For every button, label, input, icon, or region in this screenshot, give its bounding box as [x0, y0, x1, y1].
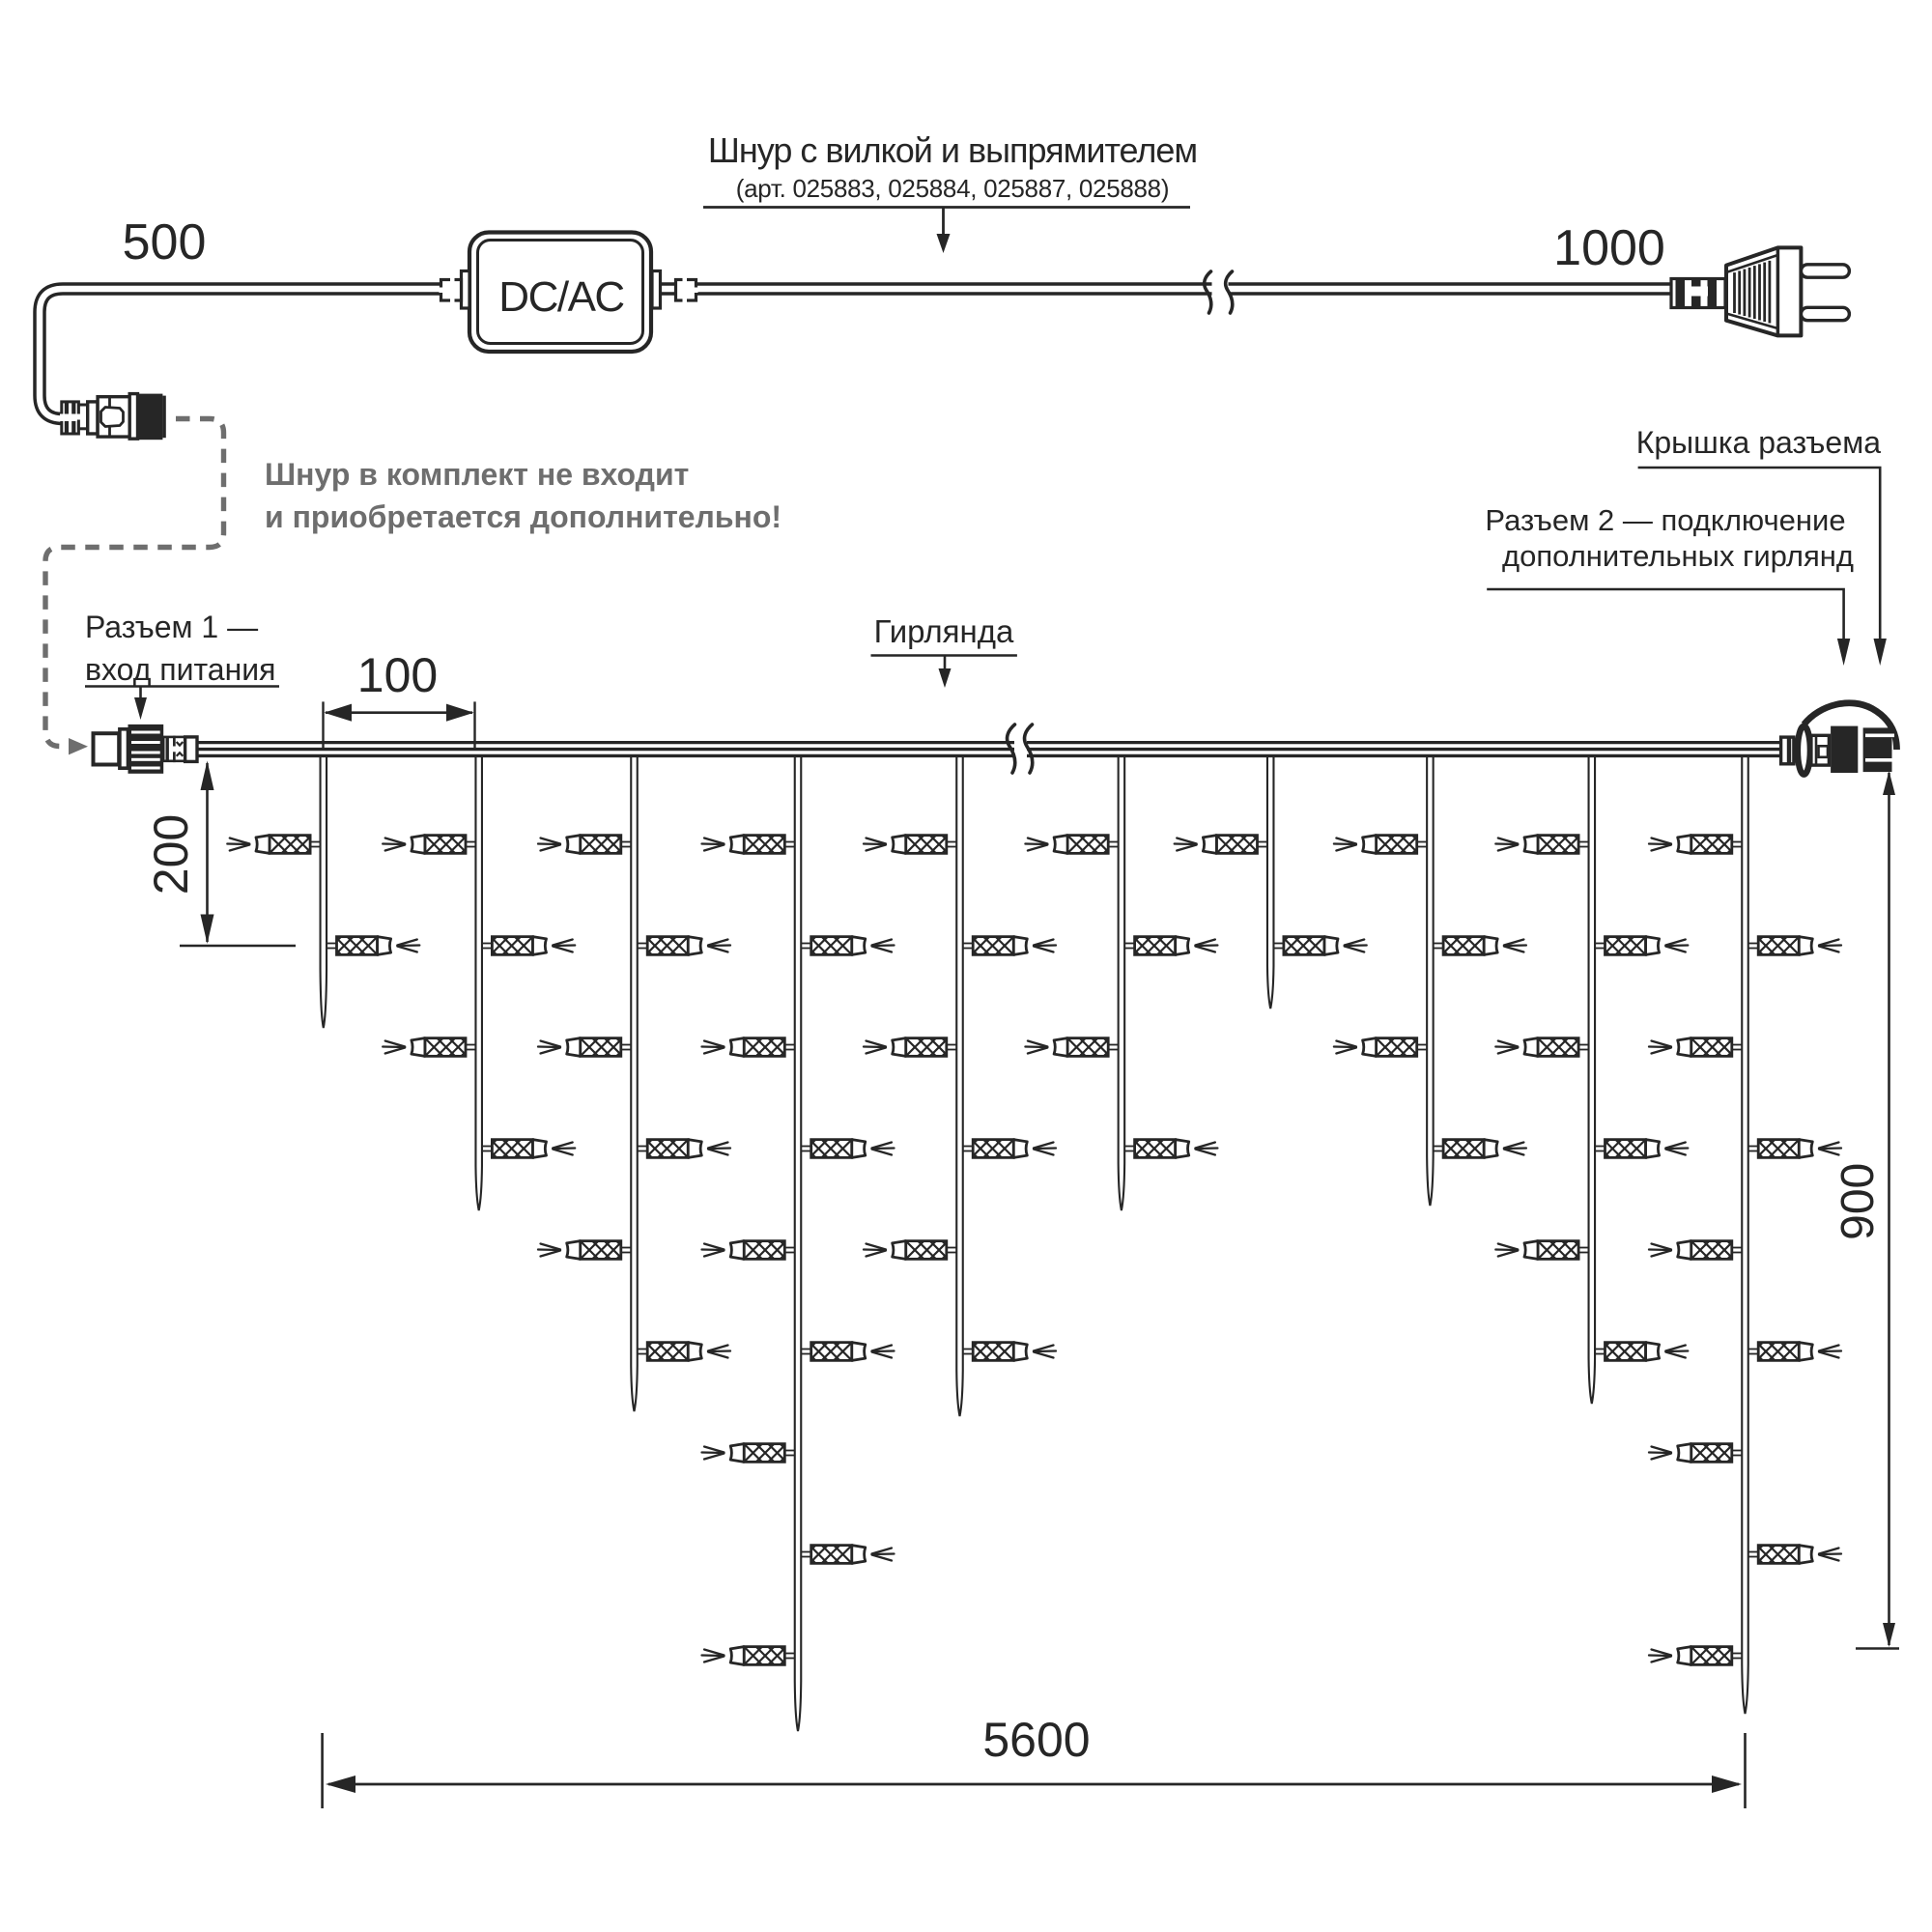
svg-text:(арт. 025883, 025884, 025887,: (арт. 025883, 025884, 025887, 025888) [736, 174, 1169, 203]
svg-text:вход питания: вход питания [85, 652, 275, 687]
svg-text:и приобретается дополнительно!: и приобретается дополнительно! [265, 499, 781, 534]
svg-text:Шнур с вилкой и выпрямителем: Шнур с вилкой и выпрямителем [708, 130, 1197, 170]
svg-text:DC/AC: DC/AC [498, 273, 624, 321]
svg-text:Гирлянда: Гирлянда [874, 613, 1014, 649]
svg-text:Разъем 1 —: Разъем 1 — [85, 610, 258, 644]
svg-text:200: 200 [144, 814, 198, 895]
svg-text:5600: 5600 [982, 1713, 1090, 1767]
svg-text:900: 900 [1833, 1163, 1884, 1240]
svg-text:дополнительных гирлянд: дополнительных гирлянд [1502, 539, 1854, 573]
svg-text:Разъем 2 — подключение: Разъем 2 — подключение [1485, 503, 1845, 537]
svg-text:Крышка разъема: Крышка разъема [1636, 425, 1882, 460]
svg-text:100: 100 [357, 648, 438, 702]
svg-text:Шнур в комплект не входит: Шнур в комплект не входит [265, 457, 689, 492]
svg-text:1000: 1000 [1553, 220, 1665, 276]
svg-text:500: 500 [123, 214, 207, 270]
